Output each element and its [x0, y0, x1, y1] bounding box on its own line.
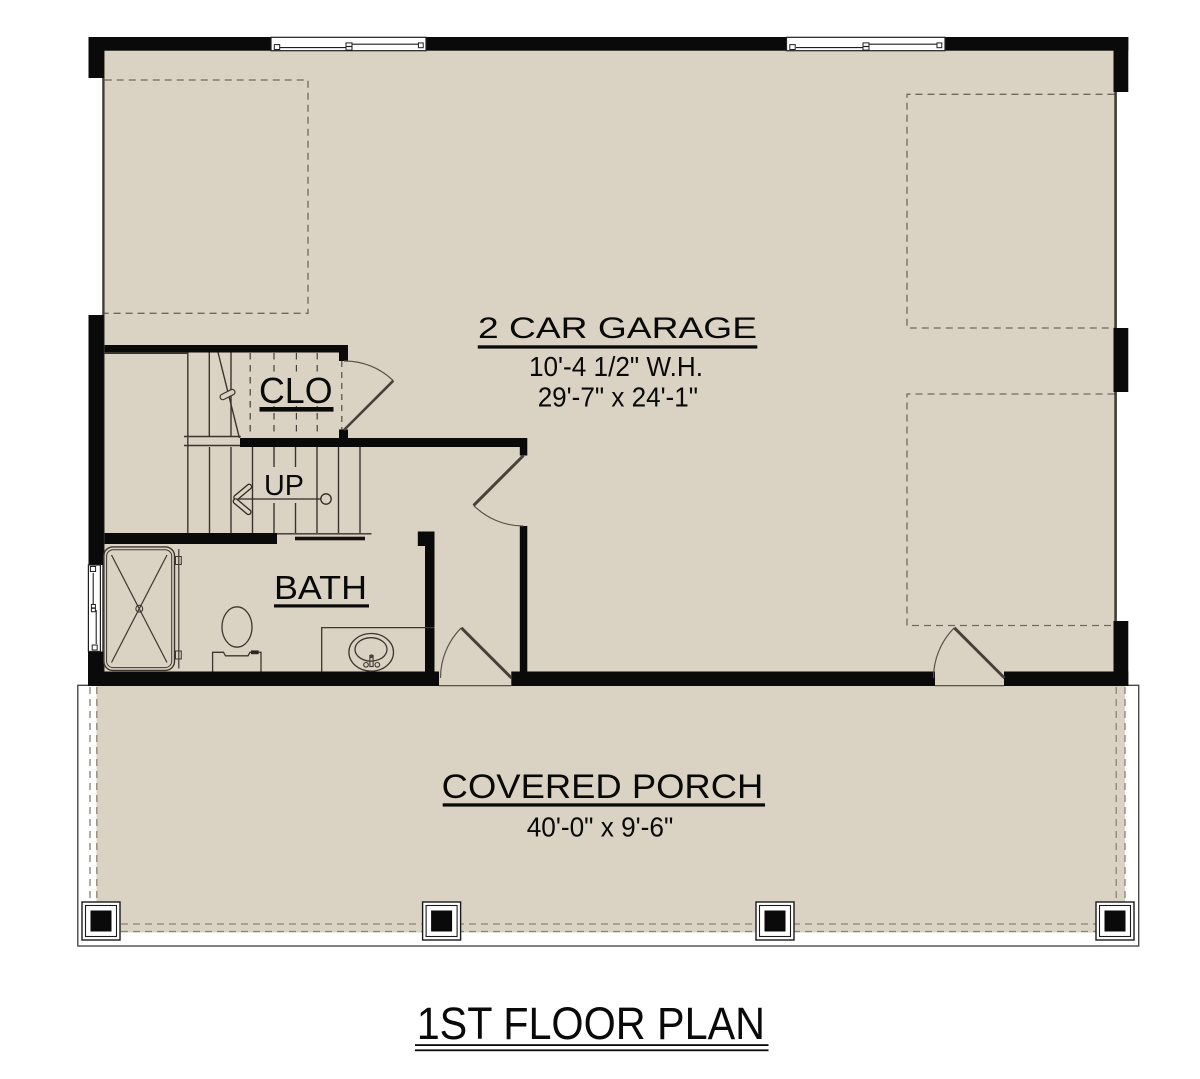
svg-text:BATH: BATH — [274, 569, 367, 606]
svg-text:40'-0" x 9'-6": 40'-0" x 9'-6" — [527, 812, 674, 843]
svg-text:UP: UP — [264, 470, 304, 502]
svg-text:COVERED PORCH: COVERED PORCH — [442, 768, 764, 806]
svg-text:CLO: CLO — [259, 370, 333, 411]
svg-text:2 CAR GARAGE: 2 CAR GARAGE — [478, 312, 757, 345]
svg-text:10'-4 1/2" W.H.: 10'-4 1/2" W.H. — [529, 351, 703, 382]
svg-text:29'-7" x 24'-1": 29'-7" x 24'-1" — [538, 382, 698, 413]
svg-text:1ST FLOOR PLAN: 1ST FLOOR PLAN — [417, 998, 765, 1049]
